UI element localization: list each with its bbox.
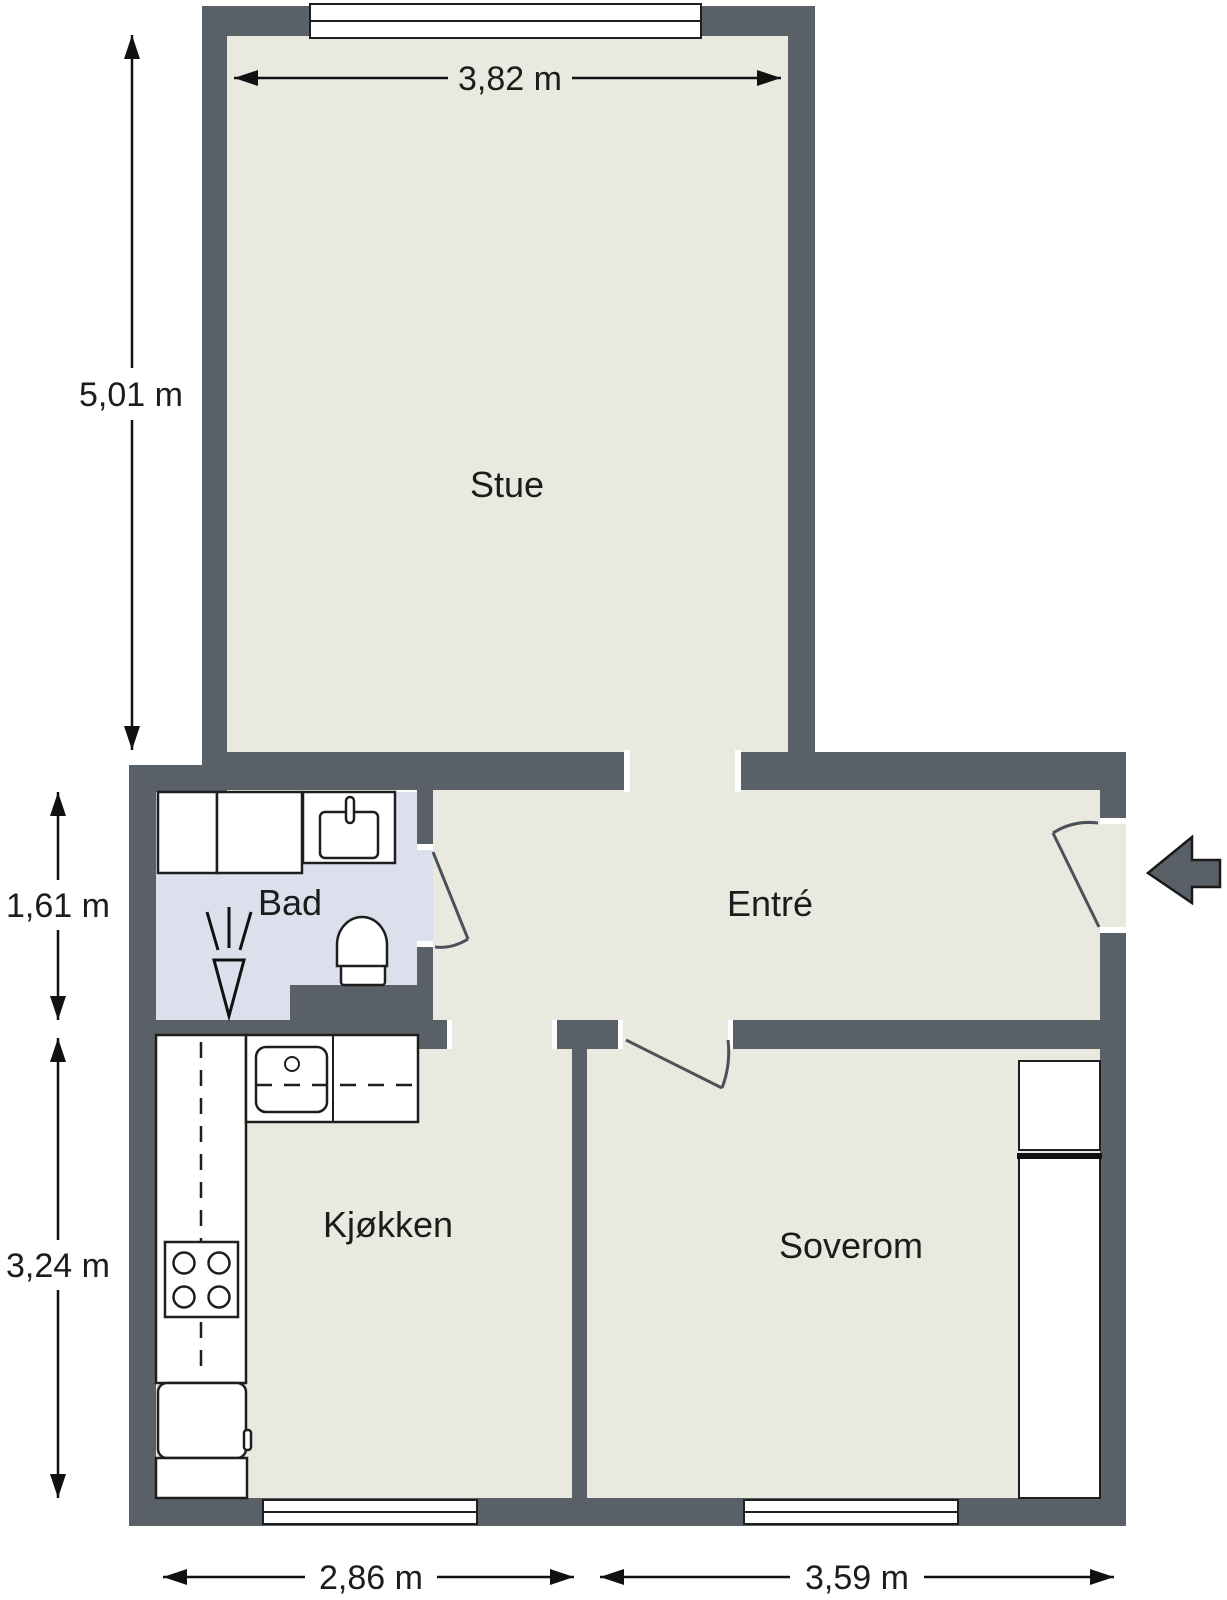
wall-outer-right-upper: [1100, 752, 1126, 823]
kitchen-window-icon: [263, 1500, 477, 1524]
toilet-icon: [337, 917, 387, 985]
jamb-bedroom-door-left: [618, 1020, 623, 1049]
jamb-entrance-door-top: [1100, 818, 1126, 824]
dim-label-bad-height: 1,61 m: [6, 887, 110, 925]
dim-bad-height: 1,61 m: [6, 792, 110, 1020]
opening-entre-kitchen: [452, 1020, 557, 1049]
jamb-kitchen-opening-left: [447, 1020, 452, 1049]
wall-stue-left: [202, 6, 227, 792]
dim-bedroom-width: 3,59 m: [600, 1559, 1114, 1597]
kitchen-sink-icon: [246, 1035, 418, 1122]
bathroom-cabinet-left: [158, 792, 217, 873]
wall-entre-top: [735, 752, 1126, 790]
kitchen-counter: [156, 1035, 246, 1383]
dim-kitchen-width: 2,86 m: [163, 1559, 574, 1597]
room-floor-stue: [227, 36, 788, 752]
wall-outer-right-lower: [1100, 927, 1126, 1526]
room-label-stue: Stue: [470, 464, 544, 505]
dim-label-stue-height: 5,01 m: [79, 376, 183, 414]
wardrobe-icon: [1017, 1155, 1102, 1498]
jamb-kitchen-opening-right: [552, 1020, 557, 1049]
wall-kitchen-bedroom-divider: [572, 1049, 587, 1498]
dim-label-bedroom-width: 3,59 m: [805, 1559, 909, 1597]
wall-kitchen-top-mid: [557, 1020, 618, 1049]
bathroom-sink-icon: [303, 792, 395, 863]
wall-stue-right: [788, 6, 815, 790]
opening-entrance-door: [1100, 824, 1126, 927]
wardrobe-top-icon: [1019, 1061, 1100, 1150]
stove-icon: [165, 1242, 238, 1317]
stue-window-icon: [310, 4, 701, 38]
opening-stue-entre: [630, 752, 735, 790]
opening-bad-door: [417, 850, 433, 941]
wall-stue-bottom-left: [202, 752, 630, 790]
kitchen-cabinet-bottom: [156, 1458, 247, 1498]
jamb-stue-opening-right: [735, 750, 741, 792]
room-label-bad: Bad: [258, 882, 322, 923]
opening-entre-bedroom: [623, 1020, 728, 1049]
bedroom-window-icon: [744, 1500, 958, 1524]
wall-bad-right-upper: [417, 790, 433, 844]
floor-plan-drawing: Stue Bad Entré Kjøkken Soverom 3,82 m 5,…: [0, 0, 1227, 1600]
floor-plan-canvas: Stue Bad Entré Kjøkken Soverom 3,82 m 5,…: [0, 0, 1227, 1600]
room-label-kjokken: Kjøkken: [323, 1204, 453, 1245]
wall-bad-notch: [290, 985, 433, 1020]
dim-stue-height: 5,01 m: [79, 35, 183, 750]
room-label-entre: Entré: [727, 883, 813, 924]
entry-arrow-icon: [1148, 837, 1220, 903]
wall-outer-left: [129, 765, 156, 1526]
room-label-soverom: Soverom: [779, 1225, 923, 1266]
fridge-icon: [158, 1383, 251, 1458]
jamb-bad-door-bottom: [417, 941, 433, 947]
dim-kitchen-height: 3,24 m: [6, 1038, 110, 1498]
wall-bedroom-top: [733, 1020, 1100, 1049]
dim-label-stue-width: 3,82 m: [458, 60, 562, 98]
dim-label-kitchen-width: 2,86 m: [319, 1559, 423, 1597]
dim-label-kitchen-height: 3,24 m: [6, 1247, 110, 1285]
jamb-entrance-door-bottom: [1100, 927, 1126, 933]
jamb-bad-door-top: [417, 844, 433, 850]
jamb-stue-opening-left: [624, 750, 630, 792]
bathroom-cabinet-right: [217, 792, 302, 873]
